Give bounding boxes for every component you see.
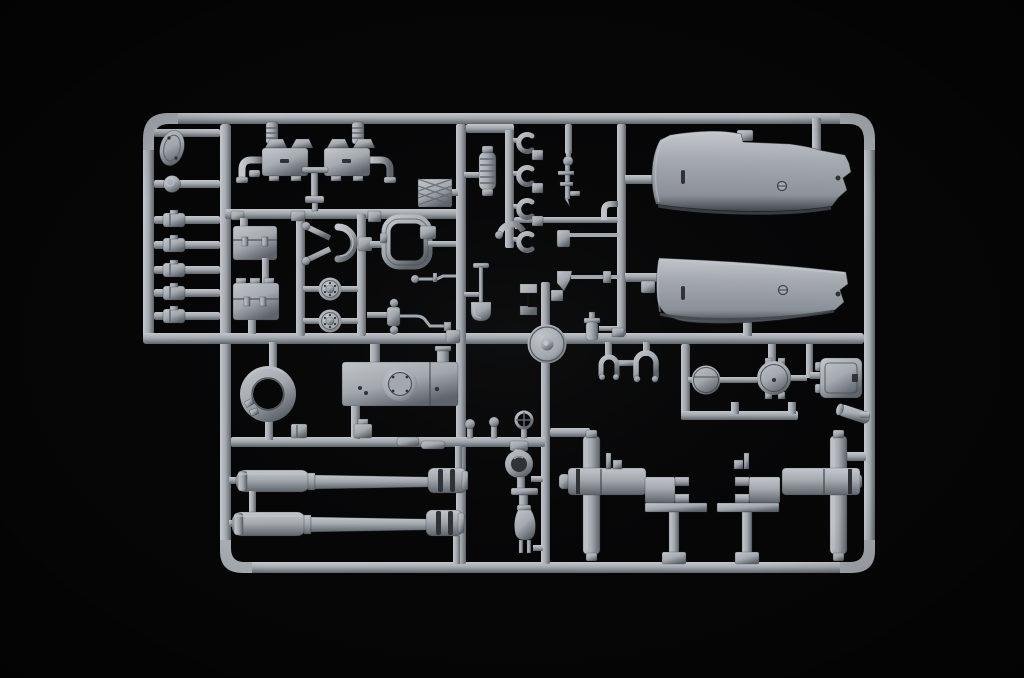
photo-canvas [0, 0, 1024, 678]
vignette-overlay [0, 0, 1024, 678]
sprue-photo [0, 0, 1024, 678]
